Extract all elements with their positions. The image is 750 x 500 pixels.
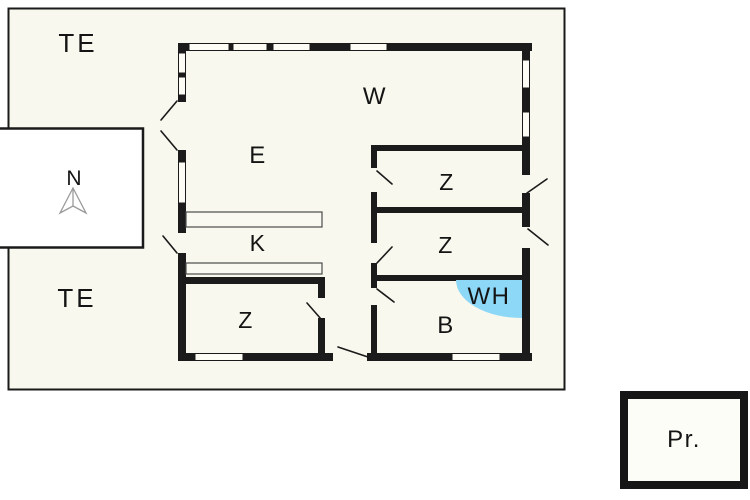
room-label-bedroom1: Z: [439, 169, 455, 195]
room-label-water-heater: WH: [468, 283, 511, 310]
wall-bedroom1-bedroom2: [371, 207, 522, 213]
outbuilding: Pr.: [624, 395, 744, 485]
window-east-1: [523, 60, 530, 88]
wall-east: [522, 43, 530, 361]
door-opening-west-lower: [178, 233, 187, 253]
window-north-1: [189, 44, 229, 51]
compass-north-label: N: [66, 167, 81, 190]
wall-bedroom1-top: [371, 145, 522, 151]
room-label-dining: E: [249, 142, 267, 169]
window-west-3: [179, 162, 186, 203]
window-south-2: [452, 354, 500, 361]
window-north-4: [350, 44, 387, 51]
window-east-2: [523, 112, 530, 137]
kitchen-counter-upper: [186, 212, 322, 227]
window-north-3: [273, 44, 310, 51]
wall-bedroom-left-top: [182, 277, 325, 284]
room-label-terrace-top: TE: [58, 28, 97, 58]
room-label-bath: B: [437, 312, 455, 339]
door-opening-east-upper: [522, 175, 531, 193]
door-opening-west-terrace: [178, 102, 187, 150]
window-west-2: [179, 77, 186, 95]
window-south-1: [195, 354, 243, 361]
room-label-bedroom2: Z: [438, 232, 454, 258]
door-opening-bedroom2: [371, 243, 378, 263]
outbuilding-label: Pr.: [667, 426, 701, 453]
room-label-kitchen: K: [250, 230, 267, 256]
door-opening-entrance: [333, 353, 367, 362]
window-north-2: [233, 44, 267, 51]
door-opening-bath: [371, 288, 378, 305]
window-west-1: [179, 53, 186, 73]
room-label-living: W: [363, 83, 387, 110]
door-opening-bedroom1: [371, 168, 378, 192]
room-label-terrace-bottom: TE: [57, 283, 96, 313]
room-label-bedroom-left: Z: [238, 307, 254, 333]
door-opening-bedroom-left: [318, 298, 326, 318]
kitchen-counter-lower: [186, 263, 322, 274]
floor-plan-canvas: TE TE N: [0, 0, 750, 500]
